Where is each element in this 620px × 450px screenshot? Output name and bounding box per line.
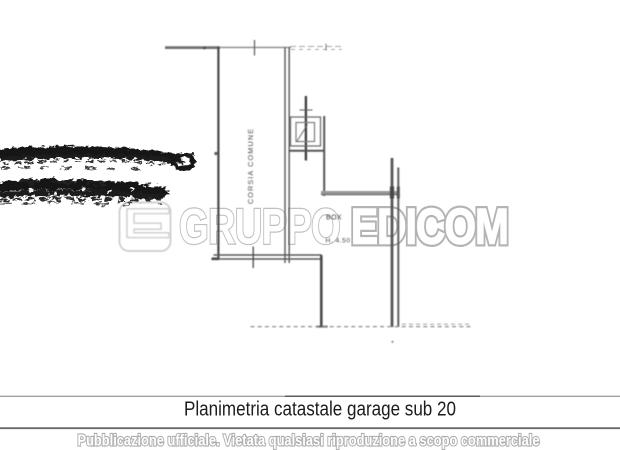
svg-text:BOX: BOX: [326, 215, 342, 222]
svg-text:Planimetria catastale garage s: Planimetria catastale garage sub 20: [184, 398, 456, 420]
svg-text:GRUPPO: GRUPPO: [179, 198, 340, 254]
svg-text:EDICOM: EDICOM: [351, 198, 508, 254]
svg-text:Pubblicazione ufficiale. Vieta: Pubblicazione ufficiale. Vietata qualsia…: [78, 433, 540, 450]
svg-text:CORSIA COMUNE: CORSIA COMUNE: [246, 128, 255, 204]
svg-text:H. 4.50: H. 4.50: [326, 238, 351, 245]
